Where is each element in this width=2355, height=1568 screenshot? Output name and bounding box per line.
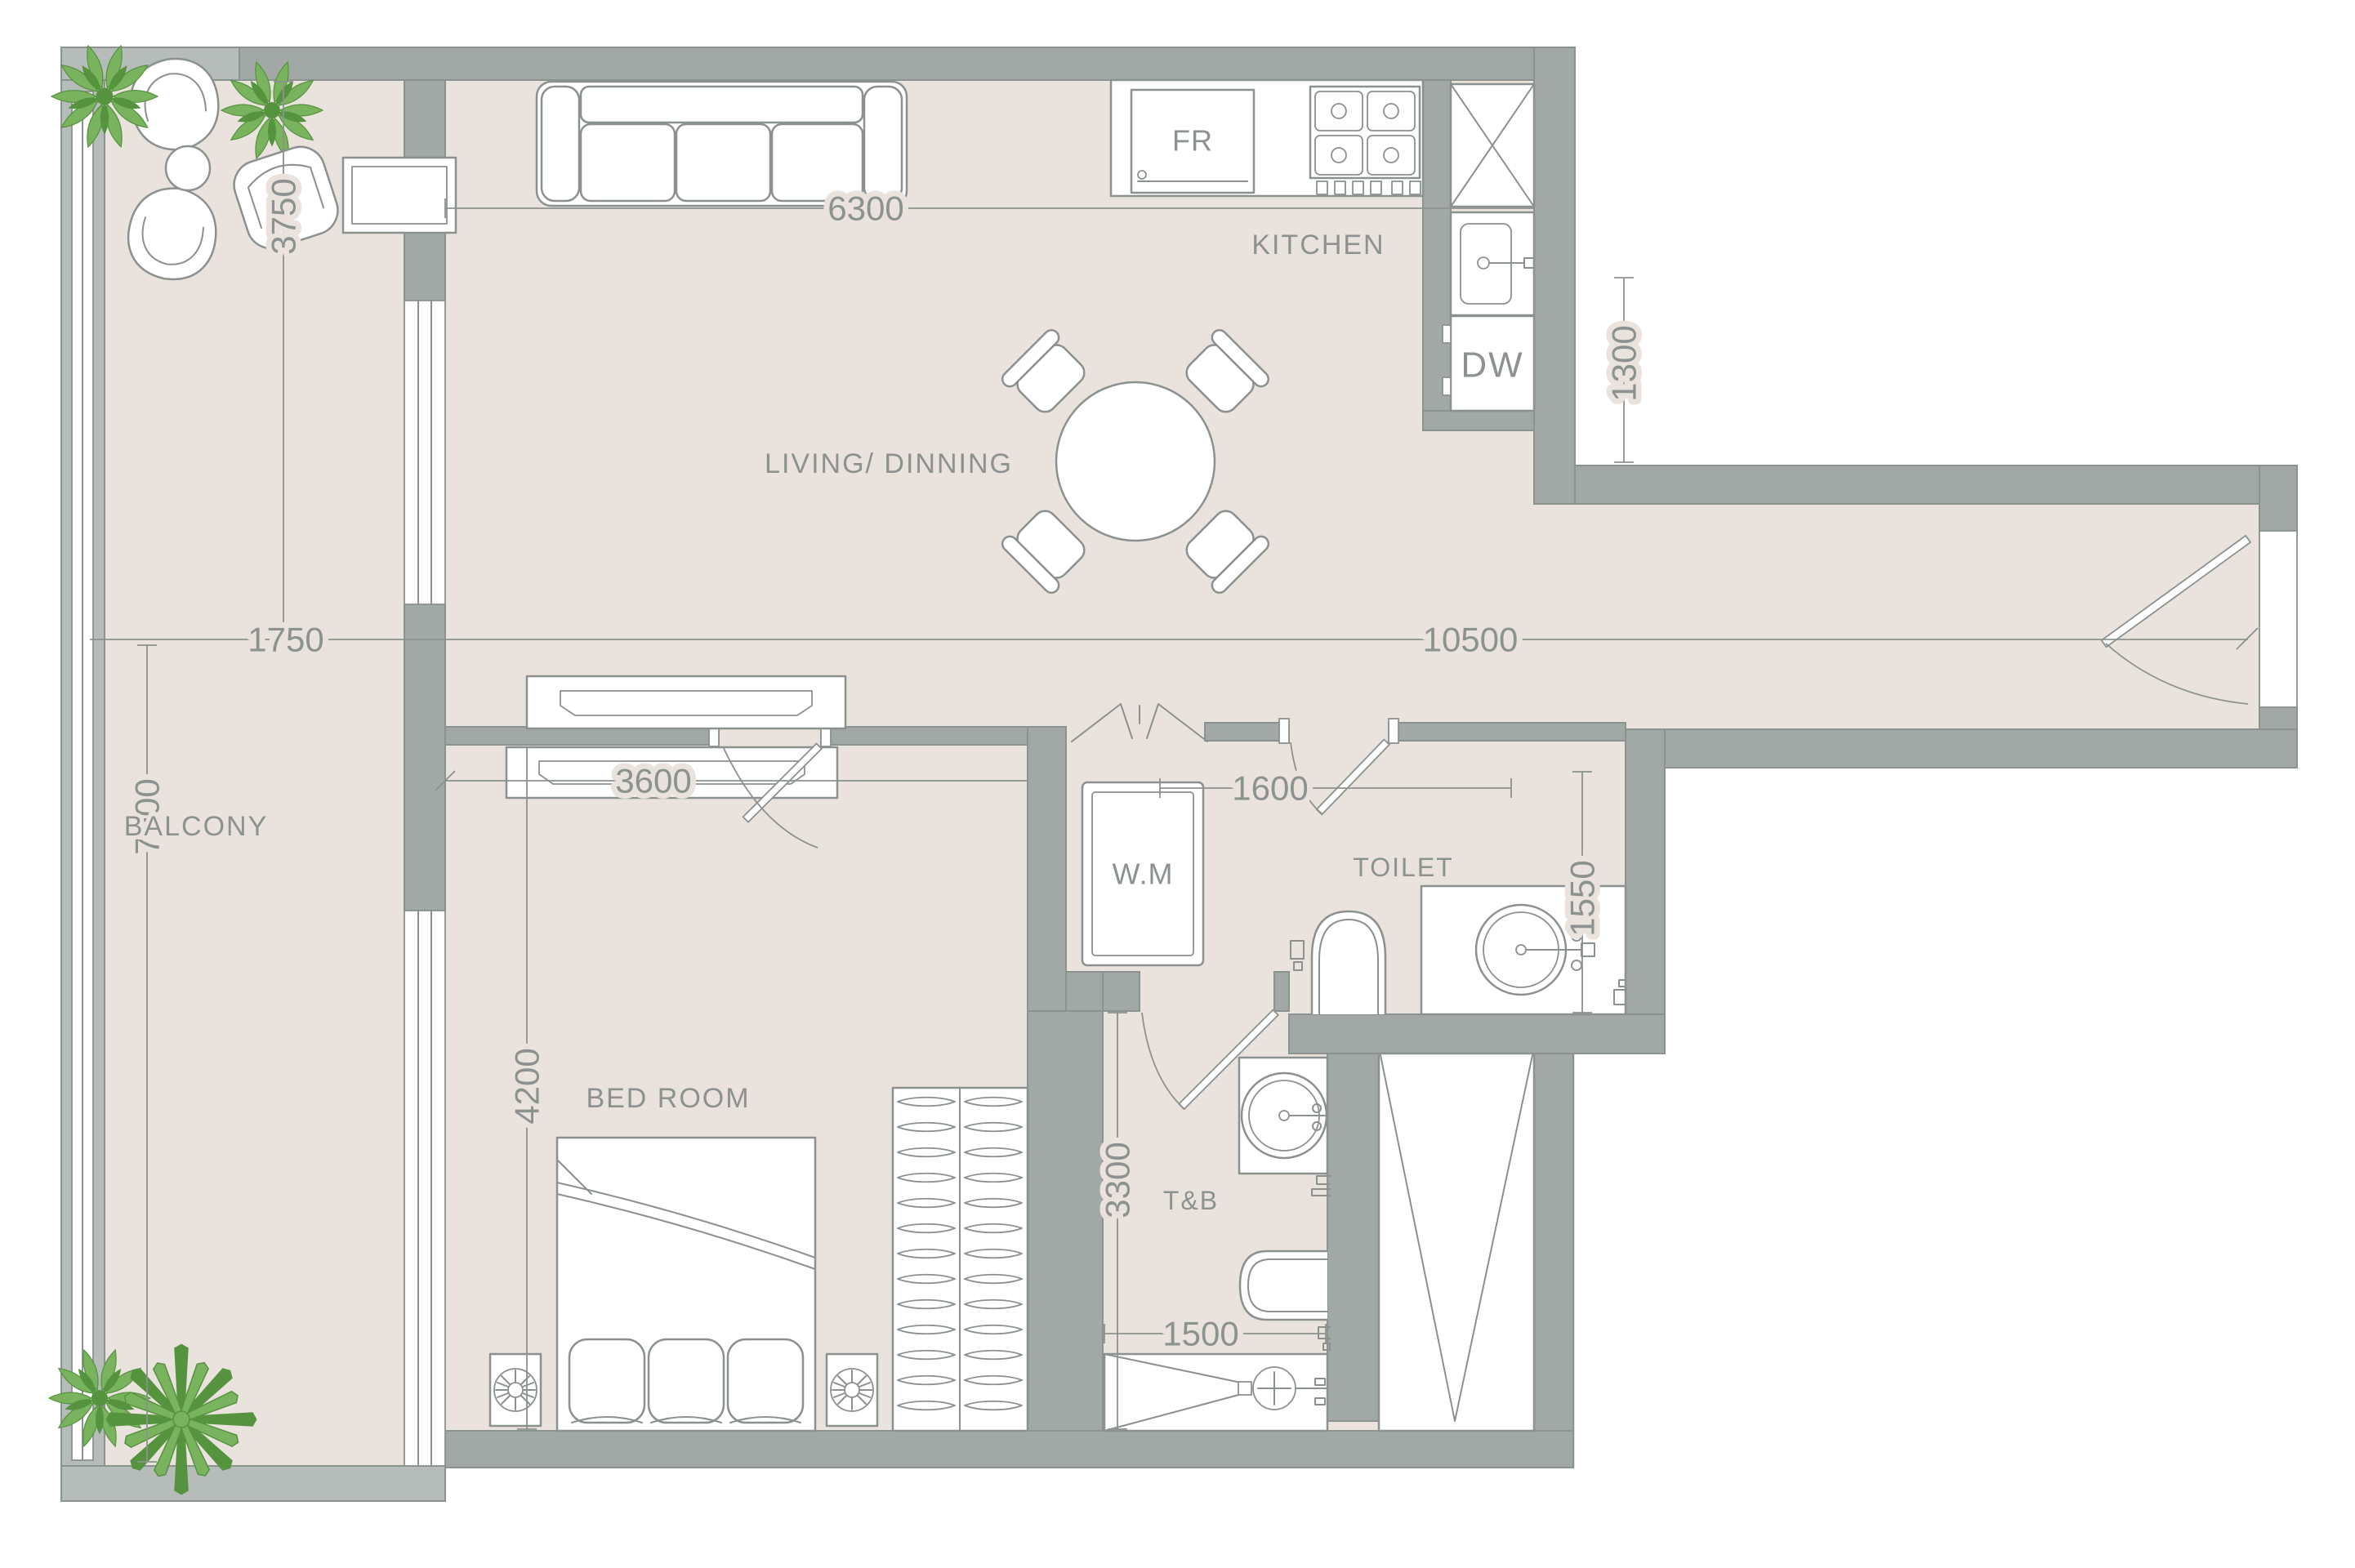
dim-toilet-depth: 1550 [1563, 860, 1602, 936]
kitchen-sink [1451, 212, 1534, 315]
top-wall [239, 47, 1575, 80]
dishwasher-label: DW [1461, 345, 1523, 385]
dim-bath-depth: 3300 [1099, 1142, 1137, 1218]
shower [1104, 1354, 1327, 1431]
nightstand-right [827, 1354, 877, 1426]
divider-wall-mid [404, 604, 445, 911]
bath-door-left-jamb [1103, 972, 1140, 1011]
dim-toilet-width: 1600 [1232, 769, 1308, 808]
shaft-right-wall [1534, 1053, 1573, 1431]
bath-label: T&B [1163, 1186, 1219, 1215]
bottom-wall [445, 1431, 1573, 1468]
toilet-door-jamb-mark [1389, 719, 1398, 743]
toilet-door-jamb-mark [1279, 719, 1289, 743]
toilet-top-wall [1389, 723, 1626, 741]
pillow [728, 1339, 803, 1423]
wardrobe-bath-wall [1028, 1011, 1103, 1431]
corridor-top-wall [1575, 465, 2297, 504]
service-shaft [1379, 1053, 1534, 1431]
corridor-floor [1575, 465, 2297, 768]
dim-living-depth: 3750 [265, 178, 303, 254]
pillow [569, 1339, 645, 1423]
toilet-label: TOILET [1353, 853, 1453, 882]
corridor-bottom-wall [1665, 729, 2297, 768]
entry-door-opening [2259, 531, 2297, 707]
dim-overall-width: 10500 [1423, 621, 1519, 659]
stove [1310, 87, 1421, 194]
nightstand-left [490, 1354, 541, 1426]
kitchen-label: KITCHEN [1251, 229, 1385, 261]
bedroom-label: BED ROOM [586, 1083, 750, 1114]
living-bedroom-wall-left [445, 727, 719, 745]
dim-balcony-width: 1750 [248, 621, 323, 659]
tv-cabinet [343, 158, 456, 233]
fridge-label: FR [1172, 124, 1213, 158]
bedroom-balcony-window [404, 911, 445, 1466]
under-toilet-wall [1289, 1014, 1665, 1053]
sofa [537, 82, 907, 206]
balcony-side-table [166, 146, 210, 190]
living-bedroom-wall-right [821, 727, 1028, 745]
bath-door-right-jamb [1274, 972, 1289, 1011]
kitchen-right-wall [1534, 47, 1575, 504]
wm-closet-left-wall [1028, 727, 1066, 1011]
kitchen-column-bottom-wall [1423, 411, 1534, 430]
bath-right-wall [1327, 1053, 1379, 1421]
floor-plan-drawing: 6300 10500 1750 1300 3750 7900 3600 4200… [0, 0, 2355, 1568]
dining-table [1056, 382, 1215, 541]
bed [557, 1138, 815, 1431]
dim-bedroom-depth: 4200 [508, 1048, 546, 1124]
balcony-bottom-parapet [61, 1466, 445, 1501]
living-label: LIVING/ DINNING [765, 448, 1013, 479]
toilet-left-jamb-wall [1205, 723, 1289, 741]
living-balcony-window [404, 301, 445, 604]
bath-top-left-wall [1066, 972, 1103, 1011]
dim-living-width: 6300 [827, 189, 903, 228]
kitchen-shaft [1451, 84, 1534, 207]
living-console [527, 676, 845, 728]
dim-bath-width: 1500 [1162, 1315, 1238, 1353]
dim-bedroom-width: 3600 [615, 762, 691, 800]
corridor-right-wall-upper [2259, 465, 2297, 537]
bath-vanity [1239, 1058, 1327, 1174]
balcony-label: BALCONY [124, 811, 269, 842]
wardrobe [893, 1088, 1028, 1431]
toilet-right-wall [1626, 729, 1665, 1053]
pillow [649, 1339, 724, 1423]
floor-plan-page: 6300 10500 1750 1300 3750 7900 3600 4200… [0, 0, 2355, 1568]
dim-hall-width: 1300 [1605, 325, 1644, 401]
floors [61, 47, 2297, 1501]
washer-label: W.M [1113, 857, 1174, 891]
